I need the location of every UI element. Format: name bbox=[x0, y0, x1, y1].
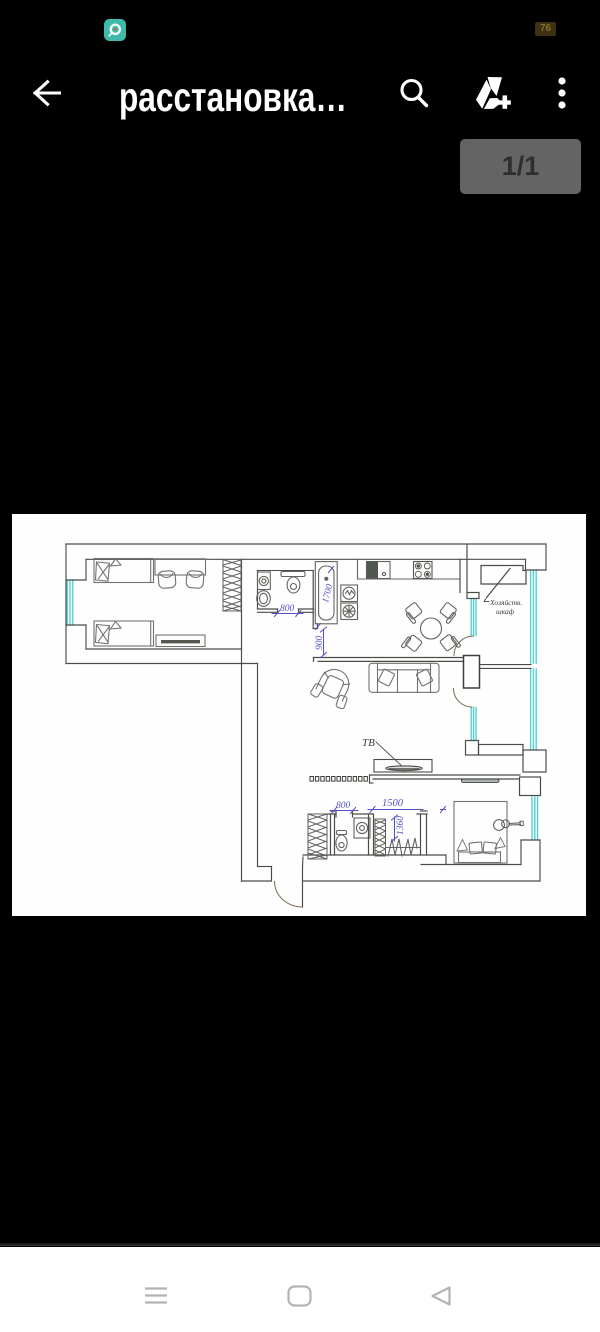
svg-text:800: 800 bbox=[336, 801, 351, 811]
svg-text:расстановка…: расстановка… bbox=[119, 75, 347, 120]
svg-text:1700: 1700 bbox=[321, 583, 335, 604]
svg-text:ТВ: ТВ bbox=[362, 737, 375, 749]
svg-text:900: 900 bbox=[315, 636, 325, 651]
svg-text:Хозяйств.: Хозяйств. bbox=[489, 598, 522, 607]
svg-text:шкаф: шкаф bbox=[496, 607, 515, 616]
svg-text:800: 800 bbox=[280, 604, 295, 614]
svg-text:1500: 1500 bbox=[382, 798, 404, 809]
svg-text:1360: 1360 bbox=[396, 816, 406, 835]
